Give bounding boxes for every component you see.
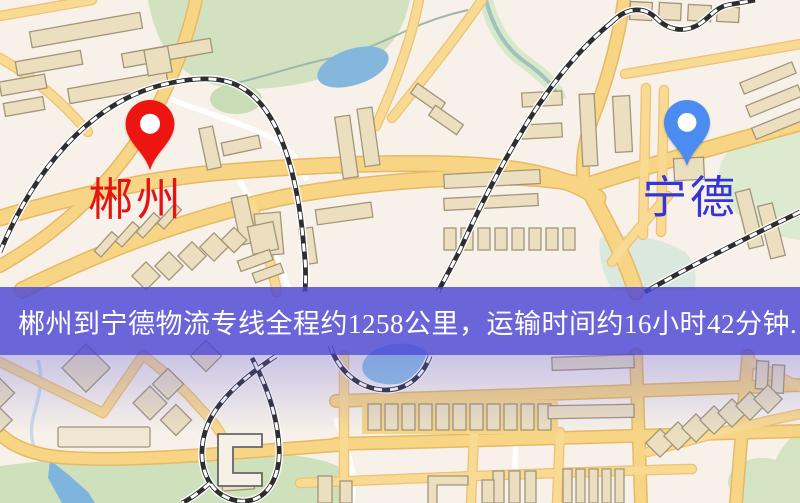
route-banner: 郴州到宁德物流专线全程约1258公里，运输时间约16小时42分钟. xyxy=(0,287,800,355)
logistics-map-image: 郴州 宁德 郴州到宁德物流专线全程约1258公里，运输时间约16小时42分钟. xyxy=(0,0,800,503)
destination-label: 宁德 xyxy=(642,176,738,221)
map-pin-icon xyxy=(662,100,712,166)
route-banner-text: 郴州到宁德物流专线全程约1258公里，运输时间约16小时42分钟. xyxy=(0,302,797,341)
destination-pin[interactable] xyxy=(662,100,712,166)
origin-label: 郴州 xyxy=(88,178,184,223)
map-pin-icon xyxy=(124,100,176,170)
map-background xyxy=(0,0,800,503)
origin-pin[interactable] xyxy=(124,100,176,170)
